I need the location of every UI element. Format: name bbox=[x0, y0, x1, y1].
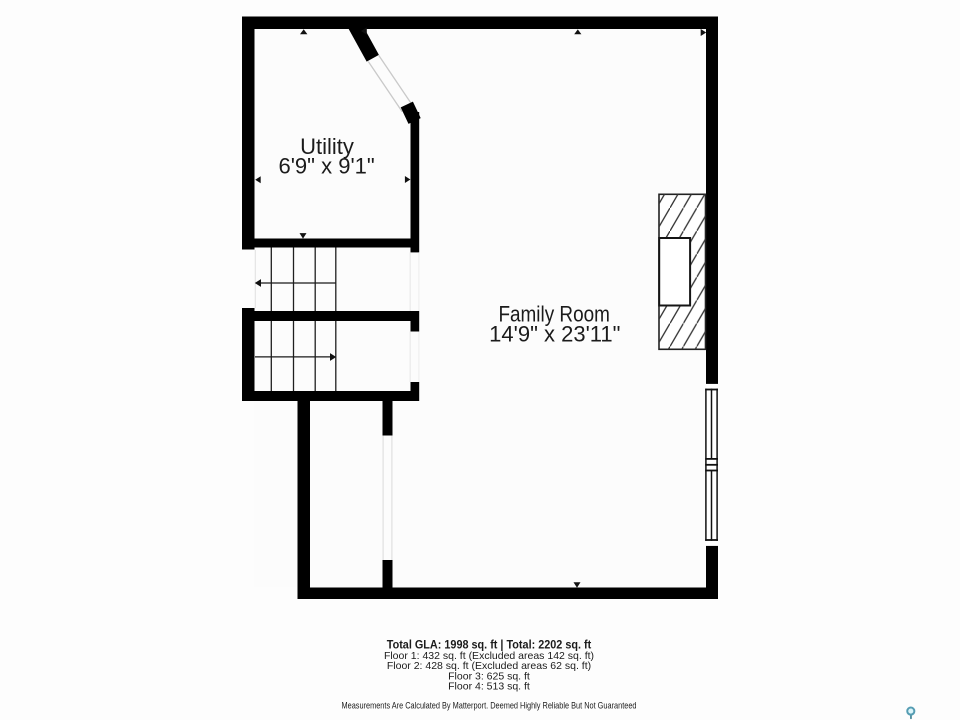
svg-text:6'9" x 9'1": 6'9" x 9'1" bbox=[279, 154, 375, 179]
svg-text:14'9" x 23'11": 14'9" x 23'11" bbox=[489, 322, 620, 347]
svg-text:Floor 4: 513 sq. ft: Floor 4: 513 sq. ft bbox=[448, 681, 530, 693]
svg-text:Measurements Are Calculated By: Measurements Are Calculated By Matterpor… bbox=[342, 701, 637, 711]
